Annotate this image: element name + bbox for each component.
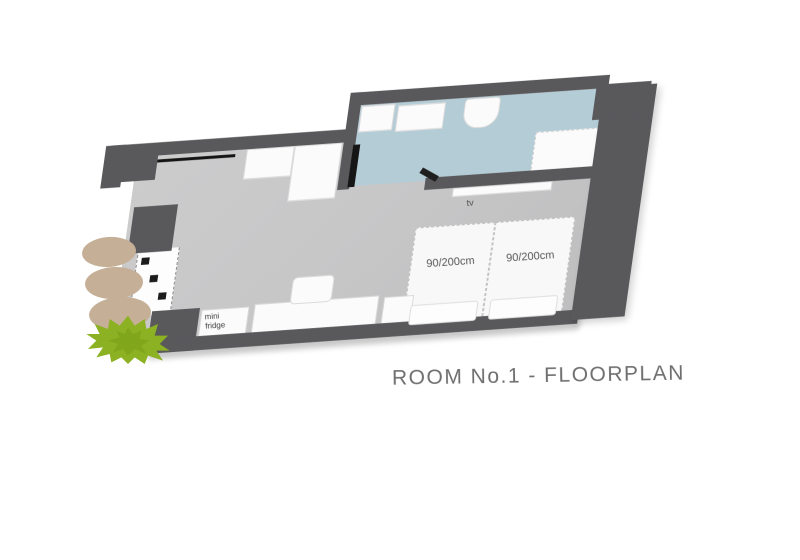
door-handle-marker	[149, 275, 158, 283]
closet-unit	[287, 143, 343, 202]
bed-1-size-label: 90/200cm	[426, 255, 475, 270]
door-hinge-marker	[158, 292, 167, 300]
tv-label: tv	[466, 198, 474, 208]
sink	[395, 102, 447, 132]
wall-left-upper	[121, 155, 158, 182]
door-hinge-marker	[141, 257, 150, 265]
bathroom-cabinet	[358, 104, 396, 133]
floorplan-title: ROOM No.1 - FLOORPLAN	[392, 361, 702, 390]
mini-fridge-label: mini fridge	[204, 310, 239, 331]
wardrobe-unit	[243, 146, 295, 180]
chair	[289, 274, 335, 304]
plant-icon	[84, 314, 172, 364]
bed-2-size-label: 90/200cm	[506, 249, 555, 264]
